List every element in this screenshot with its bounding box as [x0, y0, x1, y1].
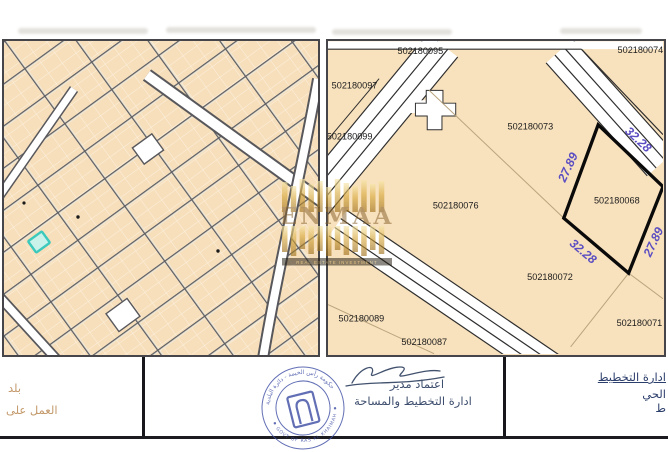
approval-department: ادارة التخطيط والمساحة [348, 394, 478, 408]
plot-label: 502180074 [618, 45, 663, 55]
footer-right-line2: الحي [642, 387, 666, 401]
plot-detail-panel: 502180095 502180097 502180099 502180073 … [326, 39, 666, 357]
divider [142, 357, 145, 439]
plot-label: 502180072 [527, 272, 573, 282]
plot-label: 502180087 [401, 337, 447, 347]
plot-label: 502180076 [433, 200, 479, 210]
title-block: بلد العمل على اعتماد مدير ادارة التخطيط … [0, 357, 668, 452]
approval-signature [338, 359, 448, 395]
footer-right-line1: ادارة التخطيط [598, 370, 666, 384]
municipality-stamp: حكومة رأس الخيمة - دائرة البلدية GOVT OF… [255, 360, 351, 452]
ghost-smudge [18, 28, 148, 34]
footer-left-line2: العمل على [6, 403, 58, 417]
plot-detail-map: 502180095 502180097 502180099 502180073 … [328, 41, 663, 354]
location-map [4, 41, 320, 357]
divider [503, 357, 506, 439]
ghost-smudge [332, 29, 452, 35]
footer-right-line3: ط [655, 401, 666, 415]
footer-left-line1: بلد [8, 381, 21, 395]
plot-label: 502180099 [328, 132, 372, 142]
selected-plot-label: 502180068 [594, 195, 640, 205]
ghost-smudge [560, 28, 642, 34]
ghost-smudge [166, 27, 316, 33]
plot-map-document: 502180095 502180097 502180099 502180073 … [0, 0, 668, 452]
plot-label: 502180097 [332, 80, 378, 90]
plot-label: 502180095 [398, 46, 444, 56]
stamp-english-text: GOVT OF RAS AL KHAIMAH [274, 411, 344, 451]
plot-label: 502180071 [617, 318, 663, 328]
svg-text:GOVT OF RAS AL KHAIMAH: GOVT OF RAS AL KHAIMAH [274, 411, 344, 451]
plot-label: 502180073 [508, 122, 554, 132]
plot-label: 502180089 [339, 313, 385, 323]
location-map-panel [2, 39, 320, 357]
